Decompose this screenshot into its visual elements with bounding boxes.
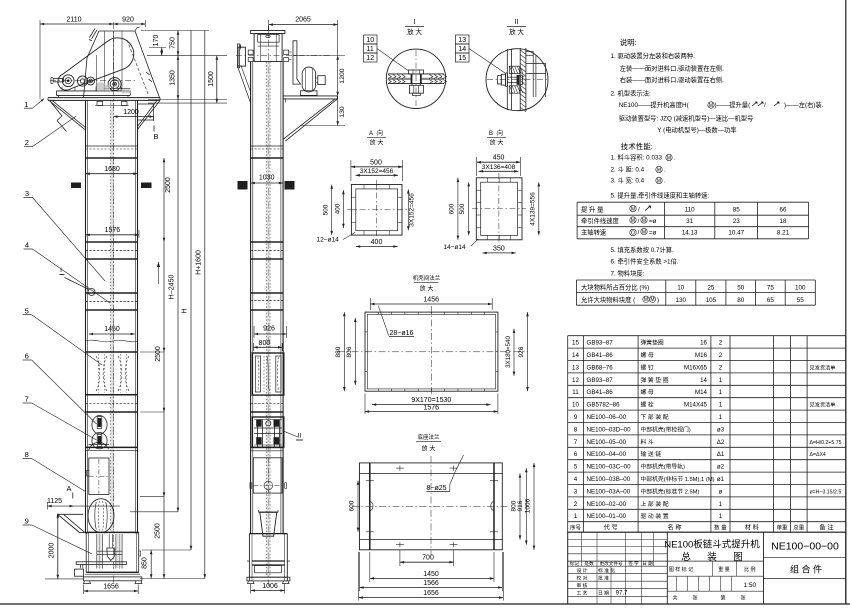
svg-text:1:50: 1:50 <box>743 582 756 589</box>
svg-text:技术性能:: 技术性能: <box>621 141 653 151</box>
svg-text:1566: 1566 <box>423 580 439 587</box>
svg-text:14: 14 <box>572 352 579 359</box>
svg-text:1125: 1125 <box>47 498 62 505</box>
svg-text:25: 25 <box>707 285 715 292</box>
svg-text:2065: 2065 <box>295 17 311 24</box>
svg-text:M: M <box>631 206 635 212</box>
svg-text:共: 共 <box>672 595 677 602</box>
svg-text:张: 张 <box>692 595 697 602</box>
svg-text:170: 170 <box>153 35 160 47</box>
svg-text:牵引件线速度: 牵引件线速度 <box>581 216 619 225</box>
svg-text:I: I <box>60 267 62 274</box>
svg-text:1. 驱动装置分左装和右装两种.: 1. 驱动装置分左装和右装两种. <box>611 51 696 60</box>
svg-text:上 部 装 配: 上 部 装 配 <box>641 500 669 508</box>
svg-text:放 大: 放 大 <box>407 27 422 36</box>
svg-text:NE100–05–00: NE100–05–00 <box>587 439 627 446</box>
svg-text:M16X65: M16X65 <box>684 364 708 371</box>
svg-text:5. 提升量,牵引件线速度和主轴转速:: 5. 提升量,牵引件线速度和主轴转速: <box>611 191 710 200</box>
svg-text:ø=H−3.15/2.5: ø=H−3.15/2.5 <box>810 489 842 495</box>
svg-text:B: B <box>153 132 158 141</box>
svg-text:驱 动 装 置: 驱 动 装 置 <box>641 512 669 520</box>
svg-text:说明:: 说明: <box>620 37 637 47</box>
svg-text:螺 母: 螺 母 <box>641 351 654 359</box>
svg-text:1: 1 <box>719 513 723 520</box>
svg-text:105: 105 <box>706 297 717 304</box>
svg-text:提 升 量: 提 升 量 <box>581 205 604 214</box>
svg-text:23: 23 <box>733 218 741 225</box>
svg-text:NE100–06–00: NE100–06–00 <box>587 414 627 421</box>
svg-text:97.7: 97.7 <box>616 591 628 597</box>
svg-text:9X170=1530: 9X170=1530 <box>411 397 451 404</box>
svg-text:向: 向 <box>377 129 383 137</box>
svg-text:85: 85 <box>733 207 741 214</box>
svg-text:中部机壳(带检视门): 中部机壳(带检视门) <box>641 425 691 433</box>
svg-text:16: 16 <box>700 340 707 347</box>
svg-text:10: 10 <box>677 285 685 292</box>
svg-text:8: 8 <box>574 426 578 433</box>
svg-text:1: 1 <box>574 513 578 520</box>
svg-text:装: 装 <box>707 551 717 563</box>
svg-text:GB5782–86: GB5782–86 <box>587 402 621 409</box>
svg-text:NE100——提升机高度H(: NE100——提升机高度H( <box>619 100 690 109</box>
svg-text:机壳间法兰: 机壳间法兰 <box>413 274 441 282</box>
svg-text:放 大: 放 大 <box>490 139 504 147</box>
svg-text:10: 10 <box>366 37 374 44</box>
svg-text:总重: 总重 <box>793 523 805 531</box>
svg-text:/: / <box>638 207 640 214</box>
svg-text:GB93–87: GB93–87 <box>587 377 614 384</box>
svg-text:H−2450: H−2450 <box>169 275 176 300</box>
svg-text:M: M <box>642 218 646 224</box>
svg-text:2: 2 <box>719 340 723 347</box>
svg-text:100: 100 <box>795 285 806 292</box>
svg-text:11: 11 <box>572 389 579 396</box>
svg-text:批 准: 批 准 <box>598 575 609 582</box>
svg-text:/: / <box>638 218 640 225</box>
svg-text:1450: 1450 <box>423 571 439 578</box>
svg-text:4X139=556: 4X139=556 <box>529 192 536 226</box>
svg-text:1: 1 <box>24 100 28 109</box>
svg-text:NE100–01–00: NE100–01–00 <box>587 513 627 520</box>
svg-text:下 部 装 配: 下 部 装 配 <box>641 413 669 421</box>
svg-text:50: 50 <box>737 285 745 292</box>
svg-text:总: 总 <box>681 551 691 563</box>
svg-text:图: 图 <box>733 552 743 563</box>
svg-text:Δ=H/0.2+5.75: Δ=H/0.2+5.75 <box>810 440 842 446</box>
svg-text:见发货清单: 见发货清单 <box>810 401 836 409</box>
svg-text:输 送 链: 输 送 链 <box>641 450 662 458</box>
svg-text:弹簧垫圈: 弹簧垫圈 <box>641 339 664 347</box>
svg-text:向: 向 <box>497 129 503 137</box>
svg-text:130: 130 <box>339 106 346 118</box>
svg-text:8.21: 8.21 <box>777 230 790 237</box>
svg-text:.: . <box>664 167 666 174</box>
svg-text:800: 800 <box>259 340 271 347</box>
svg-text:.: . <box>664 178 666 185</box>
svg-text:)——提升量(: )——提升量( <box>715 100 752 109</box>
svg-text:7: 7 <box>574 439 578 446</box>
svg-text:名 称: 名 称 <box>667 523 681 531</box>
svg-text:A: A <box>369 131 373 137</box>
svg-text:Y (电动机型号)—极数—功率: Y (电动机型号)—极数—功率 <box>657 125 736 134</box>
svg-text:1680: 1680 <box>104 166 120 173</box>
svg-text:中部机壳(带导轨): 中部机壳(带导轨) <box>641 463 686 471</box>
svg-text:ø3: ø3 <box>717 426 725 433</box>
svg-text:处数: 处数 <box>584 560 594 567</box>
svg-text:11: 11 <box>367 46 374 53</box>
svg-text:螺 母: 螺 母 <box>641 388 654 396</box>
svg-text:GB41–86: GB41–86 <box>587 352 614 359</box>
svg-text:更改文件号: 更改文件号 <box>600 560 623 567</box>
svg-text:500: 500 <box>459 203 466 214</box>
svg-text:80: 80 <box>737 297 745 304</box>
svg-text:55: 55 <box>797 297 805 304</box>
svg-text:I: I <box>414 19 416 26</box>
svg-text:3X152=456: 3X152=456 <box>409 193 416 227</box>
svg-text:序号: 序号 <box>570 523 582 531</box>
svg-text:NE100板链斗式提升机: NE100板链斗式提升机 <box>664 539 760 551</box>
svg-text:3X180=540: 3X180=540 <box>505 336 512 368</box>
svg-text:2500: 2500 <box>155 346 162 362</box>
svg-text:NE100–03A–00: NE100–03A–00 <box>587 488 631 495</box>
svg-text:850: 850 <box>142 557 149 569</box>
svg-text:1656: 1656 <box>103 584 119 591</box>
svg-text:750: 750 <box>170 37 177 49</box>
svg-text:=ø: =ø <box>649 218 657 225</box>
svg-text:600: 600 <box>448 203 455 214</box>
svg-text:15: 15 <box>572 340 579 347</box>
svg-text:2500: 2500 <box>155 523 162 539</box>
svg-text:/: / <box>638 230 640 237</box>
svg-text:M: M <box>644 297 648 303</box>
svg-text:2. 机型表示法:: 2. 机型表示法: <box>611 89 651 98</box>
svg-text:2000: 2000 <box>49 543 56 559</box>
svg-text:4: 4 <box>25 241 29 250</box>
svg-text:1450: 1450 <box>104 326 120 333</box>
svg-text:审 核: 审 核 <box>577 582 588 589</box>
svg-text:H+1600: H+1600 <box>195 250 202 275</box>
svg-text:6: 6 <box>574 451 578 458</box>
svg-text:8−ø25: 8−ø25 <box>427 485 447 492</box>
svg-text:放 大: 放 大 <box>422 445 436 453</box>
svg-text:6: 6 <box>25 352 29 361</box>
svg-text:Δ=ΔX4: Δ=ΔX4 <box>810 452 826 458</box>
svg-text:1656: 1656 <box>423 590 439 597</box>
svg-text:14: 14 <box>700 377 707 384</box>
svg-text:12: 12 <box>572 377 579 384</box>
svg-text:1500: 1500 <box>208 71 215 87</box>
svg-text:放 大: 放 大 <box>370 139 384 147</box>
svg-text:右装——面对进料口,驱动装置在右侧.: 右装——面对进料口,驱动装置在右侧. <box>620 75 724 84</box>
svg-text:350: 350 <box>493 245 505 252</box>
svg-text:2. 斗 距: 0.4: 2. 斗 距: 0.4 <box>611 166 645 174</box>
svg-text:底座法兰: 底座法兰 <box>417 433 440 441</box>
svg-text:28−ø16: 28−ø16 <box>390 330 414 337</box>
svg-text:3X152=456: 3X152=456 <box>360 168 394 175</box>
svg-text:M14: M14 <box>695 389 708 396</box>
svg-text:M: M <box>667 155 671 161</box>
svg-text:66: 66 <box>779 207 787 214</box>
svg-text:M16: M16 <box>695 352 708 359</box>
svg-text:9: 9 <box>25 517 29 526</box>
svg-text:ø2: ø2 <box>717 464 725 471</box>
svg-text:料 斗: 料 斗 <box>641 438 654 446</box>
svg-text:14−ø14: 14−ø14 <box>443 244 466 251</box>
svg-text:单重: 单重 <box>776 523 788 531</box>
svg-text:图 样 标 记: 图 样 标 记 <box>669 566 693 573</box>
svg-text:110: 110 <box>685 207 696 214</box>
svg-text:Δ2: Δ2 <box>717 439 725 446</box>
svg-text:12: 12 <box>366 55 374 62</box>
svg-text:校 对: 校 对 <box>577 575 588 582</box>
svg-text:15: 15 <box>458 55 466 62</box>
svg-text:NE100–02–00: NE100–02–00 <box>587 501 627 508</box>
svg-text:1200: 1200 <box>339 68 346 83</box>
svg-text:500: 500 <box>323 204 330 215</box>
svg-text:9: 9 <box>574 414 578 421</box>
svg-text:比 例: 比 例 <box>744 566 755 573</box>
svg-text:张: 张 <box>740 595 745 602</box>
svg-text:材 料: 材 料 <box>745 523 759 531</box>
svg-text:ø: ø <box>719 488 723 495</box>
svg-text:日 期: 日 期 <box>598 591 609 597</box>
svg-text:1456: 1456 <box>423 297 439 304</box>
svg-text:代 号: 代 号 <box>604 523 618 531</box>
svg-text:左装——面对进料口,驱动装置在左侧.: 左装——面对进料口,驱动装置在左侧. <box>620 64 724 73</box>
svg-text:2: 2 <box>719 364 723 371</box>
svg-text:8: 8 <box>25 450 29 459</box>
svg-text:700: 700 <box>422 555 434 562</box>
svg-text:10: 10 <box>572 402 579 409</box>
svg-text:5: 5 <box>25 307 29 316</box>
svg-text:M14X45: M14X45 <box>684 402 708 409</box>
svg-text:31: 31 <box>686 218 694 225</box>
svg-text:A: A <box>66 484 71 493</box>
svg-text:75: 75 <box>767 285 775 292</box>
svg-text:1: 1 <box>719 402 723 409</box>
svg-text:放 大: 放 大 <box>509 27 524 36</box>
svg-text:13: 13 <box>458 37 466 44</box>
svg-text:1: 1 <box>719 377 723 384</box>
svg-text:驱动装置型号: JZQ (减速机型号)—速比—机型号: 驱动装置型号: JZQ (减速机型号)—速比—机型号 <box>619 114 754 123</box>
svg-text:标记: 标记 <box>570 560 580 567</box>
svg-text:4: 4 <box>574 476 578 483</box>
svg-text:GB41–86: GB41–86 <box>587 389 614 396</box>
svg-text:400: 400 <box>334 203 341 214</box>
svg-text:12−ø14: 12−ø14 <box>317 237 340 244</box>
svg-text:5. 填充系数按 0.7计算.: 5. 填充系数按 0.7计算. <box>611 245 675 254</box>
svg-text:数 量: 数 量 <box>714 523 727 531</box>
svg-text:1: 1 <box>719 414 723 421</box>
svg-text:130: 130 <box>676 297 687 304</box>
svg-text:3. 斗 宽: 0.4: 3. 斗 宽: 0.4 <box>611 176 645 185</box>
svg-text:7. 物料块度:: 7. 物料块度: <box>611 269 645 278</box>
svg-text:签 字: 签 字 <box>628 560 639 566</box>
svg-text:NE100–03D–00: NE100–03D–00 <box>587 426 632 433</box>
svg-text:II: II <box>298 433 302 440</box>
svg-text:O: O <box>631 230 635 236</box>
svg-text:工 艺: 工 艺 <box>577 591 588 597</box>
svg-text:450: 450 <box>493 155 505 162</box>
svg-text:Δ1: Δ1 <box>717 451 725 458</box>
svg-text:3: 3 <box>25 189 29 198</box>
svg-text:1030: 1030 <box>259 175 275 182</box>
svg-text:65: 65 <box>767 297 775 304</box>
svg-text:926: 926 <box>518 346 525 357</box>
svg-text:NE100–04–00: NE100–04–00 <box>587 451 627 458</box>
svg-text:806: 806 <box>346 346 353 357</box>
svg-text:3: 3 <box>574 488 578 495</box>
svg-text:1: 1 <box>719 389 723 396</box>
svg-text:18: 18 <box>779 218 787 225</box>
svg-text:II: II <box>515 19 519 26</box>
svg-text:中部机壳(标准节 2.5M): 中部机壳(标准节 2.5M) <box>641 487 700 495</box>
svg-text:中部机壳(非标节 1.5M),1 (M): 中部机壳(非标节 1.5M),1 (M) <box>641 475 715 483</box>
svg-text:1200: 1200 <box>123 109 139 116</box>
svg-text:/: / <box>764 102 766 109</box>
svg-text:1350: 1350 <box>170 70 177 86</box>
svg-text:1576: 1576 <box>105 227 121 234</box>
svg-text:2500: 2500 <box>165 177 172 193</box>
svg-text:926: 926 <box>263 326 275 333</box>
svg-text:M: M <box>631 218 635 224</box>
svg-text:M: M <box>709 103 713 109</box>
svg-text:1: 1 <box>719 501 723 508</box>
svg-text:2110: 2110 <box>66 17 81 24</box>
svg-text:500: 500 <box>370 159 382 166</box>
svg-text:10.47: 10.47 <box>728 230 744 237</box>
svg-text:)——左(右)装.: )——左(右)装. <box>784 100 824 109</box>
svg-text:14: 14 <box>458 46 466 53</box>
svg-text:13: 13 <box>572 364 579 371</box>
svg-text:2: 2 <box>25 138 29 147</box>
svg-text:916: 916 <box>517 500 524 511</box>
svg-text:=ø: =ø <box>649 230 657 237</box>
svg-text:14.13: 14.13 <box>682 230 698 237</box>
svg-text:组 合 件: 组 合 件 <box>790 564 822 575</box>
svg-text:5: 5 <box>574 464 578 471</box>
svg-text:NE100–03B–00: NE100–03B–00 <box>587 476 631 483</box>
svg-text:标 准 化: 标 准 化 <box>598 567 615 574</box>
svg-text:M: M <box>642 229 646 235</box>
svg-text:M: M <box>657 178 661 184</box>
svg-text:1576: 1576 <box>424 404 440 411</box>
svg-text:重 量: 重 量 <box>718 566 729 573</box>
svg-text:600: 600 <box>349 500 356 511</box>
svg-text:螺 栓: 螺 栓 <box>641 401 654 409</box>
svg-text:880: 880 <box>335 346 342 357</box>
svg-text:1006: 1006 <box>262 583 278 590</box>
svg-text:6. 牵引件安全系数 >1倍.: 6. 牵引件安全系数 >1倍. <box>611 257 679 266</box>
svg-text:H: H <box>182 308 189 313</box>
svg-text:400: 400 <box>371 239 383 246</box>
svg-text:允许大块物料块度 (: 允许大块物料块度 ( <box>581 295 636 304</box>
svg-text:备 注: 备 注 <box>819 523 833 531</box>
svg-text:2: 2 <box>719 352 723 359</box>
svg-text:NE100–03C–00: NE100–03C–00 <box>587 464 632 471</box>
svg-text:主轴转速: 主轴转速 <box>581 228 607 237</box>
svg-text:): ) <box>657 297 659 304</box>
svg-text:螺 钉: 螺 钉 <box>641 363 654 371</box>
svg-text:.: . <box>674 155 676 162</box>
svg-text:1. 料斗容积: 0.033: 1. 料斗容积: 0.033 <box>611 153 663 162</box>
svg-text:ø1: ø1 <box>717 476 725 483</box>
svg-text:NE100−00−00: NE100−00−00 <box>771 541 839 553</box>
svg-text:M: M <box>657 167 661 173</box>
svg-text:大块物料所占百分比 (%): 大块物料所占百分比 (%) <box>581 283 649 292</box>
svg-text:弹 簧 垫 圈: 弹 簧 垫 圈 <box>641 376 669 384</box>
svg-text:2: 2 <box>574 501 578 508</box>
svg-text:GB68–76: GB68–76 <box>587 364 614 371</box>
svg-text:见发货清单: 见发货清单 <box>810 363 836 371</box>
svg-text:920: 920 <box>122 17 134 24</box>
svg-text:M: M <box>650 297 654 303</box>
svg-text:7: 7 <box>25 395 29 404</box>
svg-text:B: B <box>489 131 493 137</box>
svg-text:设 计: 设 计 <box>577 567 588 574</box>
svg-text:1006: 1006 <box>525 498 532 513</box>
svg-text:GB93–87: GB93–87 <box>587 340 614 347</box>
svg-text:3X136=408: 3X136=408 <box>482 164 516 171</box>
svg-text:第: 第 <box>720 595 725 602</box>
svg-text:放 大: 放 大 <box>420 285 434 293</box>
